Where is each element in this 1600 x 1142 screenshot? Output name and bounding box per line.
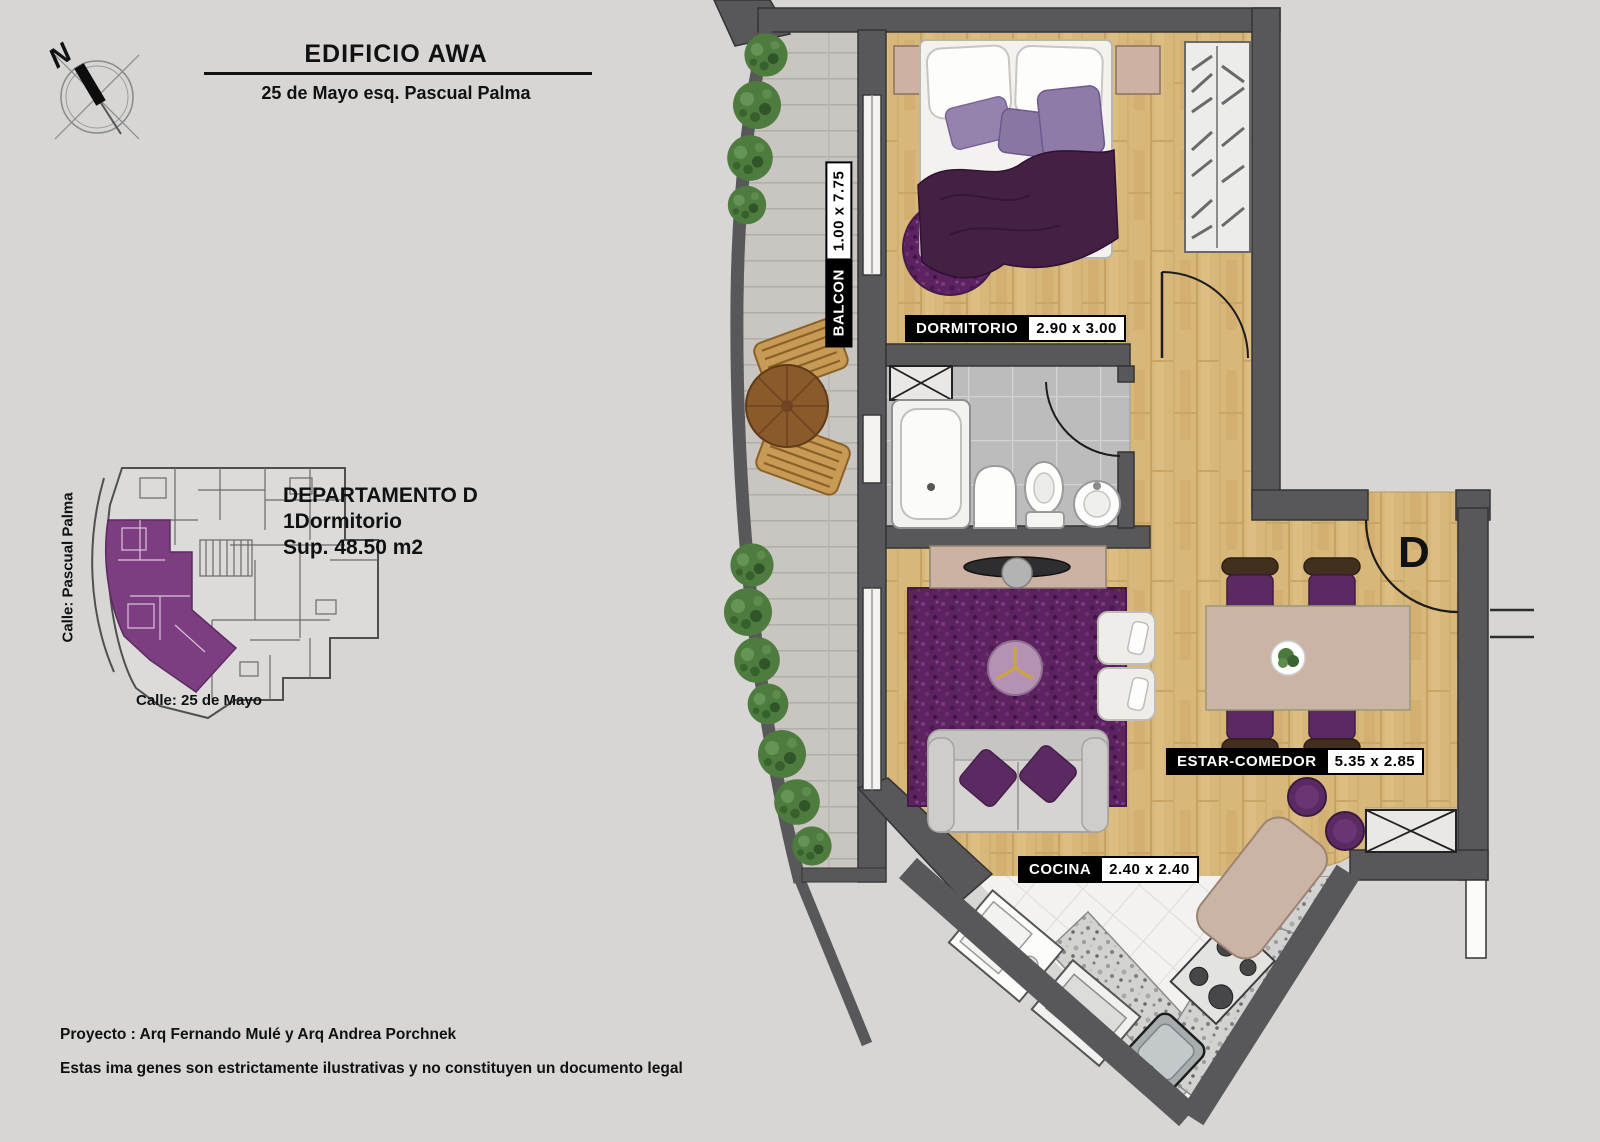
exterior-column [1466, 880, 1486, 958]
dining-table [1206, 606, 1410, 710]
table-centerpiece [1271, 641, 1305, 675]
bathroom-window [863, 415, 881, 483]
toilet [1025, 462, 1064, 528]
room-name-balcon: BALCON [825, 258, 852, 347]
footer-project-credit: Proyecto : Arq Fernando Mulé y Arq Andre… [60, 1026, 456, 1044]
room-label-estar-comedor: ESTAR-COMEDOR 5.35 x 2.85 [1166, 748, 1424, 775]
shower-tray [974, 466, 1016, 528]
dining-chair-top-left [1222, 558, 1278, 611]
wall-bathroom-right-a [1118, 366, 1134, 382]
unit-name: DEPARTAMENTO D [283, 483, 478, 509]
compass-needle [79, 66, 101, 103]
unit-type: 1Dormitorio [283, 509, 478, 535]
site-wall-diagonal [800, 880, 867, 1044]
shaft-box-bathroom [890, 366, 952, 400]
wall-bathroom-top [886, 344, 1130, 366]
balcony-round-table [746, 365, 828, 447]
wall-bathroom-bottom [886, 526, 1150, 548]
sofa [928, 730, 1108, 832]
wall-bottom-right-band [1350, 850, 1488, 880]
wall-bathroom-right-b [1118, 452, 1134, 528]
windows [863, 95, 881, 790]
shaft-box-right [1366, 810, 1456, 852]
side-table-round [988, 641, 1042, 695]
cushion-lavender-3 [1037, 85, 1106, 159]
building-address: 25 de Mayo esq. Pascual Palma [200, 83, 592, 104]
room-dims-cocina: 2.40 x 2.40 [1102, 856, 1199, 883]
wardrobe [1185, 42, 1250, 252]
street-label-bottom: Calle: 25 de Mayo [136, 692, 262, 709]
room-label-balcon: BALCON 1.00 x 7.75 [825, 162, 852, 348]
floorplan-drawing [0, 0, 1600, 1142]
entrance-letter: D [1398, 528, 1430, 578]
dining-chair-top-right [1304, 558, 1360, 611]
unit-info-block: DEPARTAMENTO D 1Dormitorio Sup. 48.50 m2 [283, 483, 478, 561]
wall-right-bedroom [1252, 8, 1280, 508]
wall-right-vertical [1458, 508, 1488, 880]
bathtub [892, 400, 970, 528]
street-label-left: Calle: Pascual Palma [60, 451, 77, 643]
wall-living-top-right-a [1252, 490, 1368, 520]
footer-disclaimer: Estas ima genes son estrictamente ilustr… [60, 1060, 683, 1078]
floorplan-page: N EDIFICIO AWA 25 de Mayo esq. Pascual P… [0, 0, 1600, 1142]
building-title: EDIFICIO AWA [200, 40, 592, 69]
armchair-top [1098, 612, 1155, 664]
room-name-cocina: COCINA [1018, 856, 1102, 883]
room-name-estar-comedor: ESTAR-COMEDOR [1166, 748, 1328, 775]
nightstand-right [1116, 46, 1160, 94]
room-name-dormitorio: DORMITORIO [905, 315, 1029, 342]
bidet-sink [1074, 481, 1120, 527]
living-room [908, 546, 1155, 832]
title-divider [204, 72, 592, 75]
room-dims-estar-comedor: 5.35 x 2.85 [1328, 748, 1425, 775]
tv-console [930, 546, 1106, 588]
unit-area: Sup. 48.50 m2 [283, 535, 478, 561]
room-label-cocina: COCINA 2.40 x 2.40 [1018, 856, 1199, 883]
room-label-dormitorio: DORMITORIO 2.90 x 3.00 [905, 315, 1126, 342]
room-dims-balcon: 1.00 x 7.75 [825, 162, 852, 259]
corridor-lines [1490, 610, 1534, 637]
room-dims-dormitorio: 2.90 x 3.00 [1029, 315, 1126, 342]
wall-top [758, 8, 1280, 32]
armchair-bottom [1098, 668, 1155, 720]
balcony-end-wall [802, 868, 886, 882]
